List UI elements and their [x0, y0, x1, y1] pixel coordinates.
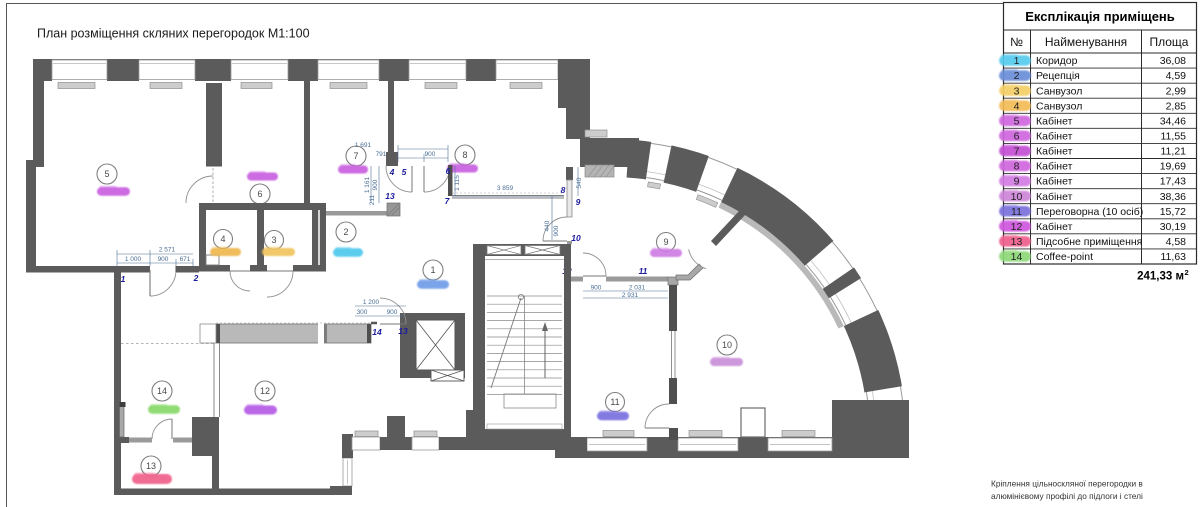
svg-text:6: 6 — [257, 189, 262, 199]
svg-text:11: 11 — [1011, 206, 1022, 218]
svg-text:15,72: 15,72 — [1160, 206, 1186, 218]
svg-text:5: 5 — [104, 169, 109, 179]
svg-text:7: 7 — [353, 151, 358, 161]
svg-text:36,08: 36,08 — [1160, 55, 1186, 67]
svg-text:1 691: 1 691 — [355, 142, 372, 149]
svg-text:7: 7 — [1014, 146, 1020, 158]
svg-text:№: № — [1010, 35, 1023, 49]
svg-text:4: 4 — [1014, 100, 1020, 112]
svg-text:1: 1 — [121, 274, 126, 284]
svg-text:2: 2 — [343, 227, 348, 237]
svg-text:Кабінет: Кабінет — [1036, 130, 1073, 142]
svg-text:13: 13 — [385, 191, 395, 201]
svg-text:3 859: 3 859 — [497, 185, 514, 192]
svg-text:14: 14 — [157, 386, 167, 396]
svg-text:8: 8 — [561, 185, 566, 195]
svg-text:10: 10 — [722, 340, 732, 350]
svg-text:5: 5 — [1014, 115, 1020, 127]
svg-text:4: 4 — [389, 167, 395, 177]
svg-text:211: 211 — [369, 194, 376, 205]
svg-text:11: 11 — [639, 266, 648, 276]
svg-text:900: 900 — [425, 151, 436, 158]
svg-text:13: 13 — [146, 461, 156, 471]
svg-text:38,36: 38,36 — [1160, 191, 1186, 203]
svg-text:Кабінет: Кабінет — [1036, 191, 1073, 203]
svg-text:11,63: 11,63 — [1161, 251, 1187, 263]
svg-text:4,59: 4,59 — [1166, 70, 1187, 82]
svg-text:11,21: 11,21 — [1161, 146, 1187, 158]
svg-text:Кабінет: Кабінет — [1036, 161, 1073, 173]
svg-text:Санвузол: Санвузол — [1036, 100, 1082, 112]
svg-text:2,99: 2,99 — [1166, 85, 1187, 97]
svg-text:900: 900 — [553, 225, 560, 236]
svg-text:6: 6 — [1014, 130, 1020, 142]
svg-text:Переговорна (10 осіб): Переговорна (10 осіб) — [1036, 206, 1143, 218]
svg-text:11,55: 11,55 — [1161, 130, 1187, 142]
svg-text:14: 14 — [372, 327, 382, 337]
svg-text:900: 900 — [158, 256, 169, 263]
svg-text:10: 10 — [571, 233, 581, 243]
svg-text:5: 5 — [402, 167, 407, 177]
svg-text:671: 671 — [180, 256, 191, 263]
svg-text:900: 900 — [387, 309, 398, 316]
svg-text:Санвузол: Санвузол — [1036, 85, 1082, 97]
svg-text:Кабінет: Кабінет — [1036, 115, 1073, 127]
svg-text:17,43: 17,43 — [1160, 176, 1186, 188]
svg-text:Кабінет: Кабінет — [1036, 221, 1073, 233]
svg-text:План розміщення скляних перего: План розміщення скляних перегородок М1:1… — [37, 27, 310, 41]
svg-text:11: 11 — [610, 397, 619, 407]
svg-text:Коридор: Коридор — [1036, 55, 1078, 67]
svg-text:13: 13 — [398, 326, 408, 336]
svg-text:30,19: 30,19 — [1160, 221, 1186, 233]
svg-text:Найменування: Найменування — [1045, 35, 1127, 49]
svg-text:Кабінет: Кабінет — [1036, 146, 1073, 158]
svg-text:Кріплення цільноскляної перего: Кріплення цільноскляної перегородки в — [991, 479, 1143, 489]
svg-text:14: 14 — [1011, 251, 1023, 263]
svg-text:13: 13 — [1011, 236, 1023, 248]
svg-text:3: 3 — [1014, 85, 1020, 97]
svg-text:Площа: Площа — [1150, 35, 1189, 49]
svg-text:900: 900 — [591, 285, 602, 292]
svg-text:9: 9 — [663, 237, 668, 247]
svg-text:1: 1 — [1014, 55, 1020, 67]
svg-text:300: 300 — [357, 309, 368, 316]
svg-text:19,69: 19,69 — [1160, 161, 1186, 173]
svg-text:1 161: 1 161 — [364, 176, 371, 193]
svg-text:2: 2 — [1014, 70, 1020, 82]
svg-text:900: 900 — [372, 179, 379, 190]
svg-text:4: 4 — [220, 234, 225, 244]
svg-text:540: 540 — [576, 177, 583, 188]
svg-text:8: 8 — [462, 150, 467, 160]
svg-text:6: 6 — [446, 166, 451, 176]
svg-text:Підсобне приміщення: Підсобне приміщення — [1036, 236, 1142, 248]
svg-text:8: 8 — [1014, 161, 1020, 173]
svg-text:2 931: 2 931 — [622, 292, 639, 299]
svg-text:241,33 м: 241,33 м — [1137, 271, 1184, 283]
svg-text:791: 791 — [376, 151, 387, 158]
svg-text:Рецепція: Рецепція — [1036, 70, 1080, 82]
svg-text:2 031: 2 031 — [629, 285, 646, 292]
svg-text:Coffee-point: Coffee-point — [1036, 251, 1093, 263]
svg-text:4,58: 4,58 — [1166, 236, 1187, 248]
svg-text:2: 2 — [193, 273, 199, 283]
svg-text:9: 9 — [576, 197, 581, 207]
svg-text:12: 12 — [1011, 221, 1023, 233]
svg-text:1 000: 1 000 — [125, 256, 142, 263]
svg-text:алюмінієвому профілі до підлог: алюмінієвому профілі до підлоги і стелі — [991, 491, 1143, 501]
svg-text:2 571: 2 571 — [159, 247, 176, 254]
svg-text:2,85: 2,85 — [1166, 100, 1187, 112]
svg-text:1 200: 1 200 — [363, 299, 380, 306]
svg-text:Експлікація приміщень: Експлікація приміщень — [1025, 9, 1175, 24]
svg-text:Кабінет: Кабінет — [1036, 176, 1073, 188]
svg-text:34,46: 34,46 — [1160, 115, 1186, 127]
svg-text:10: 10 — [1011, 191, 1023, 203]
svg-text:1 115: 1 115 — [454, 175, 461, 191]
svg-text:3: 3 — [271, 235, 276, 245]
svg-text:12: 12 — [260, 386, 270, 396]
svg-text:2: 2 — [1185, 268, 1189, 277]
svg-text:440: 440 — [544, 220, 551, 231]
svg-text:9: 9 — [1014, 176, 1020, 188]
svg-text:1: 1 — [430, 265, 435, 275]
